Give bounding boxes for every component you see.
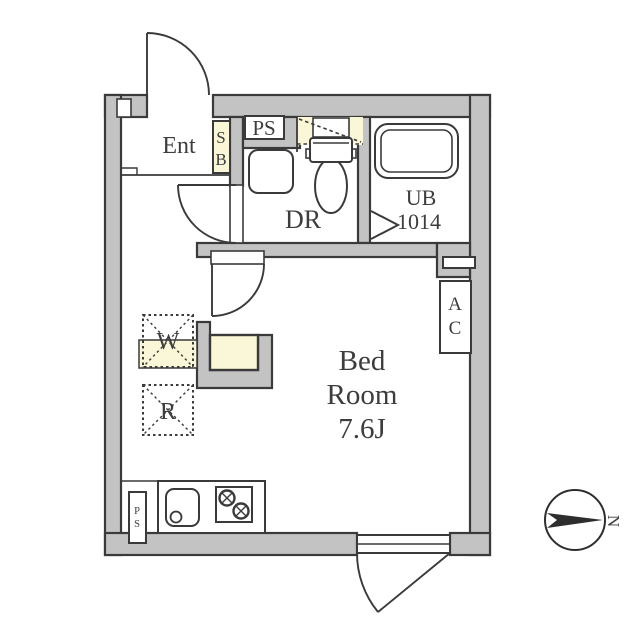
bedroom-label-line1: Bed [339,345,386,377]
compass-north-label: N [604,515,623,527]
toilet-tank-icon [310,138,352,162]
ac-label-line2: C [449,318,462,339]
entrance-door [147,33,209,95]
fridge-label: R [160,399,176,425]
compass: N [545,490,623,550]
toilet-shelf-cabinet [313,118,349,137]
window-slot [443,257,475,268]
bedroom-label-line3: 7.6J [338,413,386,445]
bedroom-counter [210,335,258,370]
ac-label-line1: A [448,294,462,315]
entrance-recess [117,99,131,117]
bathtub-inner-icon [381,130,452,172]
wall-entrance-dr [230,117,243,186]
bedroom-door-swing [212,264,264,316]
balcony-door-swing [357,553,378,612]
entrance-label: Ent [162,133,196,159]
washer-label: W [157,329,180,355]
entrance-door-swing [147,33,209,95]
wall-top-main [213,95,490,117]
vanity-sink-icon [249,150,293,193]
dr-label: DR [285,205,322,234]
kitchen-ps-label-line2: S [134,519,140,530]
ac-unit [440,281,471,353]
pipe-shaft-top-label: PS [252,116,275,140]
dr-door-swing [178,185,236,243]
unit-bath-label-line2: 1014 [397,209,441,234]
shoe-box-label-line2: B [215,150,226,169]
kitchen-ps-label-line1: P [134,506,140,517]
floor-plan-drawing: S B PS A C W R [0,0,640,637]
balcony-door-leaf [378,553,450,612]
shoe-box-label-line1: S [216,128,225,147]
wall-bottom-right [450,533,490,555]
compass-needle-icon [547,513,603,528]
kitchen-pipe-shaft-box [129,492,146,543]
bedroom-label-line2: Room [327,379,398,411]
dr-doorway [230,185,243,243]
dr-door [178,185,236,243]
unit-bath-label-line1: UB [406,185,437,210]
bedroom-doorway [211,251,264,264]
floor-plan-page: S B PS A C W R [0,0,640,637]
bedroom-door [212,264,264,316]
bath-folding-door-icon [371,211,398,239]
balcony-door [357,553,450,612]
entrance-step-corner [121,168,137,175]
wall-right [470,95,490,555]
wall-left [105,95,121,555]
